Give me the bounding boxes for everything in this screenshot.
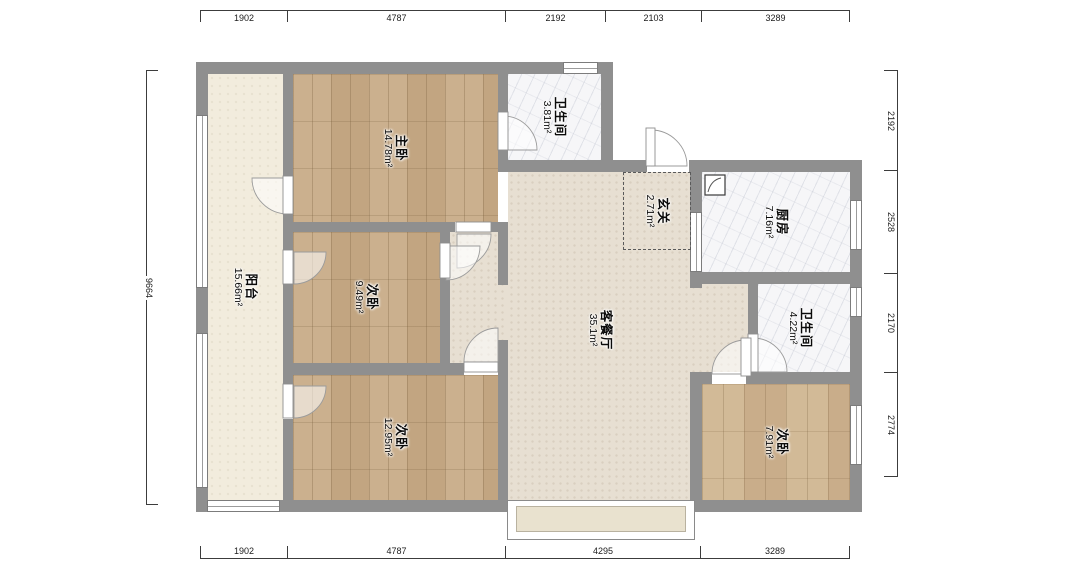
dim-segment: 2774 [884,372,898,477]
bedroom-bottom-balcony-door-leaf [283,384,293,418]
dim-segment: 2192 [505,10,605,22]
room-label-living-dining: 客餐厅35.1m² [587,310,613,351]
room-label-bathroom-right: 卫生间4.22m² [787,308,813,349]
entry-door-leaf [646,128,655,166]
doors-overlay [0,0,1074,576]
bedroom-bottom-door-leaf [464,362,498,372]
bedroom-bottom-balcony-door-arc [294,386,326,418]
bedroom-bottom-door-arc [464,328,498,362]
flue-icon [705,175,725,195]
room-label-entry: 玄关2.71m² [644,195,670,228]
dimension-chain-bottom: 1902 4787 4295 3289 [200,546,850,559]
room-label-bedroom-bottom: 次卧12.95m² [382,418,408,457]
entry-door-arc [651,130,687,166]
bedroom-mid-door-arc [446,246,480,280]
dim-segment: 2170 [884,273,898,372]
master-balcony-door-leaf [283,176,293,214]
dim-segment: 1902 [200,10,287,22]
dim-segment: 3289 [701,10,850,22]
master-door-leaf [456,222,491,232]
dim-segment: 2192 [884,70,898,170]
dim-segment: 2528 [884,170,898,273]
room-label-kitchen: 厨房7.16m² [763,206,789,239]
dimension-chain-top: 1902 4787 2192 2103 3289 [200,10,850,22]
bedroom-right-door-leaf [741,338,751,376]
floor-plan: 阳台15.66m² 主卧14.78m² 卫生间3.81m² 玄关2.71m² 厨… [0,0,1074,576]
room-label-bedroom-mid: 次卧9.49m² [353,281,379,314]
room-label-master-bedroom: 主卧14.78m² [382,129,408,168]
dim-segment: 1902 [200,546,287,559]
dim-segment: 4787 [287,546,505,559]
dimension-chain-right: 2192 2528 2170 2774 [884,70,898,477]
dim-segment: 4295 [505,546,700,559]
room-label-bedroom-right: 次卧7.91m² [763,426,789,459]
bedroom-mid-balcony-door-leaf [283,250,293,284]
room-label-balcony: 阳台15.66m² [232,268,258,307]
bedroom-mid-door-leaf [440,243,450,278]
room-label-bathroom-top: 卫生间3.81m² [541,97,567,138]
dimension-chain-left: 9664 [146,70,158,505]
bathroom-top-door-leaf [498,112,508,150]
dim-segment: 3289 [700,546,850,559]
dim-segment: 2103 [605,10,701,22]
dim-segment: 4787 [287,10,505,22]
bedroom-mid-balcony-door-arc [294,252,326,284]
